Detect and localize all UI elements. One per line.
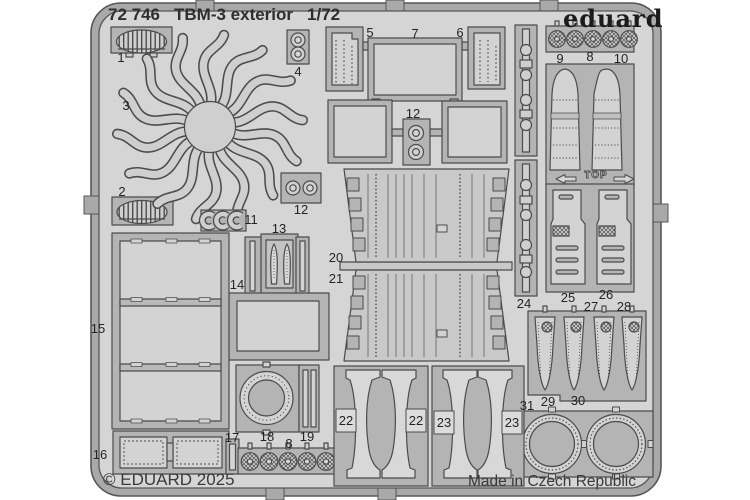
- origin-text: Made in Czech Republic: [468, 473, 636, 491]
- part-label-31: 31: [517, 398, 537, 413]
- part-label-15: 15: [88, 321, 108, 336]
- top-orientation-marker: TOP: [579, 170, 613, 181]
- part-label-2: 2: [112, 184, 132, 199]
- part-label-23-left: 23: [434, 415, 454, 430]
- part-label-25: 25: [558, 290, 578, 305]
- part-label-18: 18: [257, 429, 277, 444]
- part-label-5: 5: [360, 25, 380, 40]
- part-27-30-blades: [528, 306, 646, 401]
- part-label-8-bottom: 8: [279, 436, 299, 451]
- copyright-text: © EDUARD 2025: [103, 470, 235, 490]
- part-label-12-mid: 12: [403, 106, 423, 121]
- part-label-28: 28: [614, 299, 634, 314]
- part-6-panel: [468, 27, 505, 89]
- part-label-11: 11: [241, 212, 261, 227]
- part-label-3: 3: [116, 98, 136, 113]
- part-label-12-left: 12: [291, 202, 311, 217]
- catalog-number: 72 746: [108, 5, 160, 25]
- part-9-10-fairings: [546, 64, 634, 186]
- kit-title: TBM-3 exterior: [174, 5, 293, 25]
- part-label-27: 27: [581, 299, 601, 314]
- part-label-14: 14: [227, 277, 247, 292]
- sheet-header: 72 746 TBM-3 exterior 1/72: [108, 5, 340, 25]
- part-31-cowl-rings: [514, 407, 653, 479]
- part-label-8-top: 8: [580, 49, 600, 64]
- part-label-13: 13: [269, 221, 289, 236]
- part-label-4: 4: [288, 64, 308, 79]
- part-label-1: 1: [111, 50, 131, 65]
- part-4-grommets: [287, 30, 309, 64]
- part-label-24: 24: [514, 296, 534, 311]
- part-13-blades: [261, 234, 298, 294]
- part-16-mesh-plates: [113, 431, 229, 474]
- part-18-ring: [236, 362, 299, 435]
- part-label-17: 17: [222, 430, 242, 445]
- part-label-30: 30: [568, 393, 588, 408]
- pe-fret-sheet-graphic: [0, 0, 750, 500]
- part-11-clips: [201, 210, 246, 231]
- part-label-19: 19: [297, 429, 317, 444]
- photoetch-sheet-scan: 72 746 TBM-3 exterior 1/72 eduard © EDUA…: [0, 0, 750, 500]
- part-24-sprues: [515, 25, 537, 296]
- part-7-panel: [363, 38, 469, 103]
- part-12-left-grommets: [281, 173, 321, 203]
- part-19-strips: [299, 365, 319, 432]
- part-label-22-right: 22: [406, 413, 426, 428]
- part-label-21: 21: [326, 271, 346, 286]
- part-15-cowl-flaps: [112, 233, 229, 429]
- brand-logo: eduard: [563, 4, 663, 33]
- kit-scale: 1/72: [307, 5, 340, 25]
- part-label-23-right: 23: [502, 415, 522, 430]
- part-label-7: 7: [405, 26, 425, 41]
- part-5-panel: [326, 27, 363, 91]
- part-20-21-bomb-bay-doors: [340, 169, 512, 361]
- part-label-10: 10: [611, 51, 631, 66]
- part-label-6: 6: [450, 25, 470, 40]
- part-25-26-covers: [546, 184, 634, 292]
- part-label-16: 16: [90, 447, 110, 462]
- part-label-9: 9: [550, 51, 570, 66]
- part-label-29: 29: [538, 394, 558, 409]
- part-12-mid-grommets: [403, 119, 430, 165]
- part-label-20: 20: [326, 250, 346, 265]
- part-label-22-left: 22: [336, 413, 356, 428]
